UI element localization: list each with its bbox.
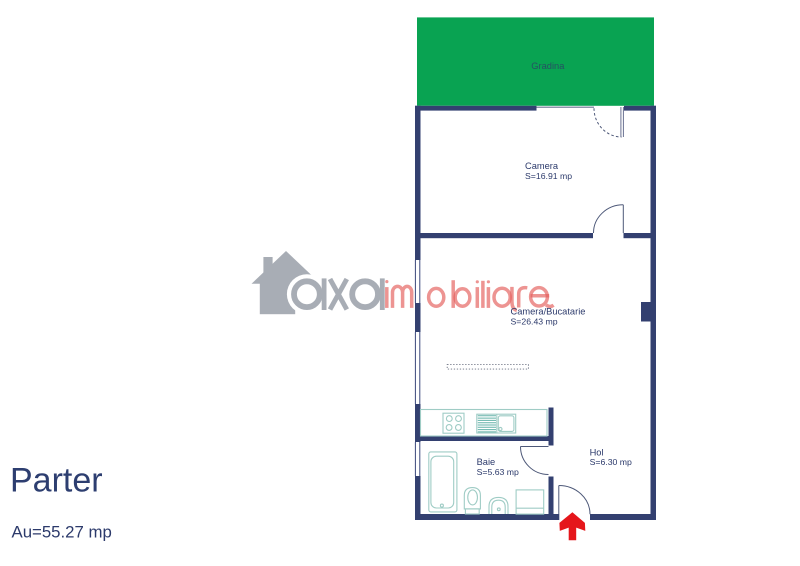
svg-text:S=26.43 mp: S=26.43 mp: [511, 317, 558, 327]
svg-text:Baie: Baie: [477, 457, 496, 467]
svg-text:S=6.30 mp: S=6.30 mp: [590, 457, 632, 467]
svg-text:S=16.91 mp: S=16.91 mp: [525, 171, 572, 181]
svg-text:Hol: Hol: [590, 447, 604, 457]
svg-text:Camera: Camera: [525, 161, 559, 171]
svg-text:Au=55.27 mp: Au=55.27 mp: [12, 523, 112, 542]
svg-text:S=5.63 mp: S=5.63 mp: [477, 467, 519, 477]
svg-text:Gradina: Gradina: [531, 61, 565, 71]
svg-text:Camera/Bucatarie: Camera/Bucatarie: [511, 306, 586, 316]
svg-text:Parter: Parter: [10, 462, 103, 500]
